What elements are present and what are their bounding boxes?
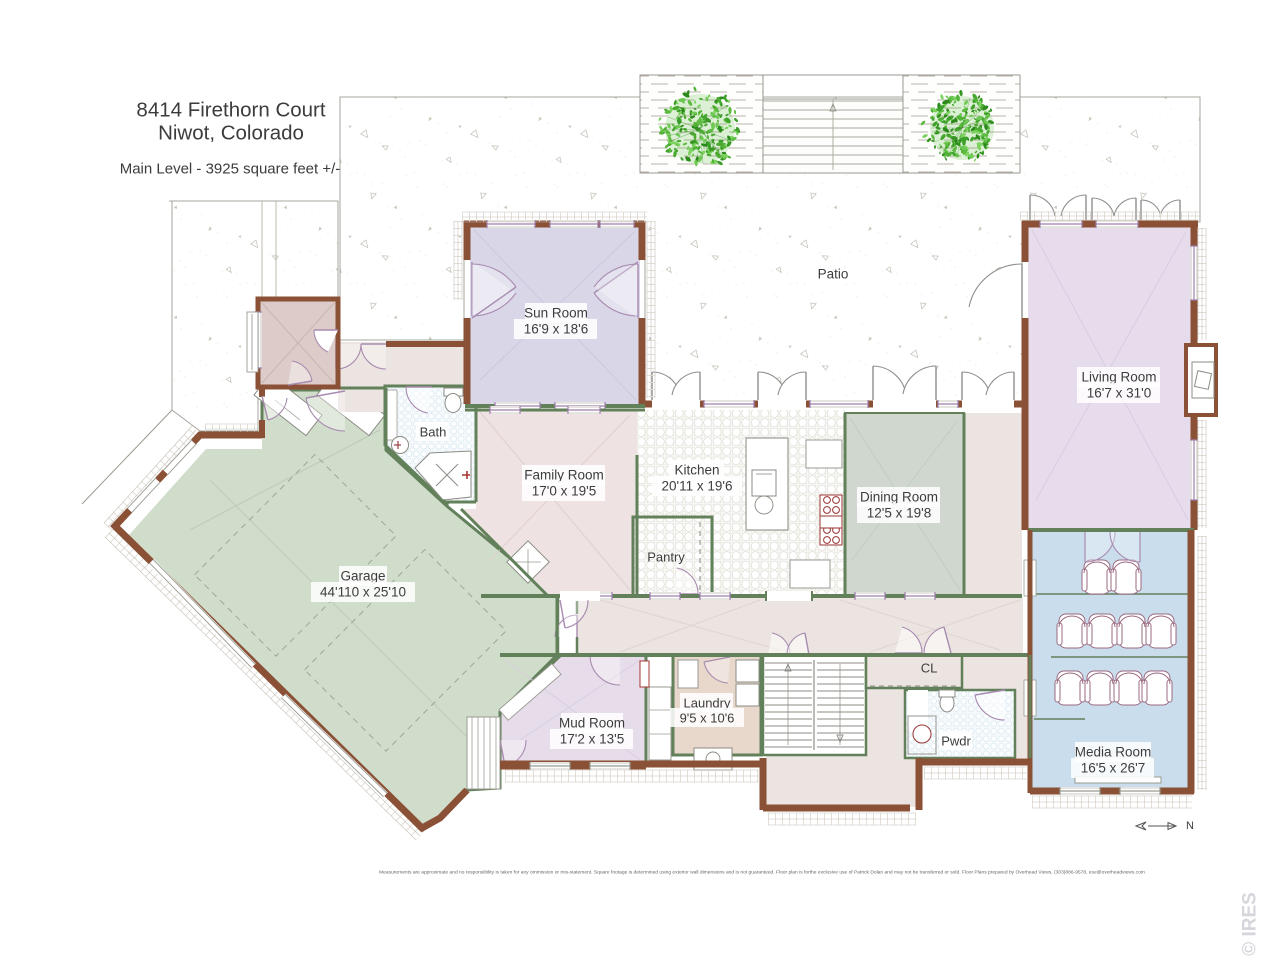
svg-text:16'5 x 26'7: 16'5 x 26'7 bbox=[1081, 761, 1145, 776]
svg-text:16'7 x 31'0: 16'7 x 31'0 bbox=[1087, 386, 1151, 401]
svg-text:44'110 x 25'10: 44'110 x 25'10 bbox=[320, 585, 406, 600]
svg-text:8414 Firethorn Court: 8414 Firethorn Court bbox=[136, 99, 325, 122]
svg-text:Living Room: Living Room bbox=[1081, 370, 1156, 385]
svg-text:Patio: Patio bbox=[818, 267, 849, 282]
svg-text:Kitchen: Kitchen bbox=[674, 463, 719, 478]
svg-text:Sun Room: Sun Room bbox=[524, 306, 588, 321]
svg-text:17'0 x 19'5: 17'0 x 19'5 bbox=[532, 484, 596, 499]
svg-text:16'9 x 18'6: 16'9 x 18'6 bbox=[524, 322, 588, 337]
svg-text:Pantry: Pantry bbox=[647, 550, 685, 565]
svg-text:N: N bbox=[1186, 820, 1194, 832]
svg-text:Mud Room: Mud Room bbox=[559, 716, 625, 731]
svg-text:Main Level - 3925 square feet: Main Level - 3925 square feet +/- bbox=[120, 161, 341, 178]
svg-text:CL: CL bbox=[921, 661, 938, 676]
svg-text:Family Room: Family Room bbox=[524, 468, 604, 483]
svg-text:Pwdr: Pwdr bbox=[941, 734, 971, 749]
svg-text:12'5 x 19'8: 12'5 x 19'8 bbox=[867, 506, 931, 521]
svg-text:20'11 x 19'6: 20'11 x 19'6 bbox=[662, 479, 733, 494]
svg-text:© IRES: © IRES bbox=[1240, 892, 1261, 956]
svg-text:Dining Room: Dining Room bbox=[860, 490, 938, 505]
svg-text:Garage: Garage bbox=[340, 569, 385, 584]
svg-text:Bath: Bath bbox=[420, 425, 447, 440]
svg-text:Media Room: Media Room bbox=[1075, 745, 1152, 760]
svg-text:17'2 x 13'5: 17'2 x 13'5 bbox=[560, 732, 624, 747]
svg-text:Niwot, Colorado: Niwot, Colorado bbox=[158, 122, 304, 145]
svg-text:Measurements are approximate: Measurements are approximate and no resp… bbox=[379, 870, 1145, 876]
svg-text:9'5 x 10'6: 9'5 x 10'6 bbox=[680, 711, 735, 726]
